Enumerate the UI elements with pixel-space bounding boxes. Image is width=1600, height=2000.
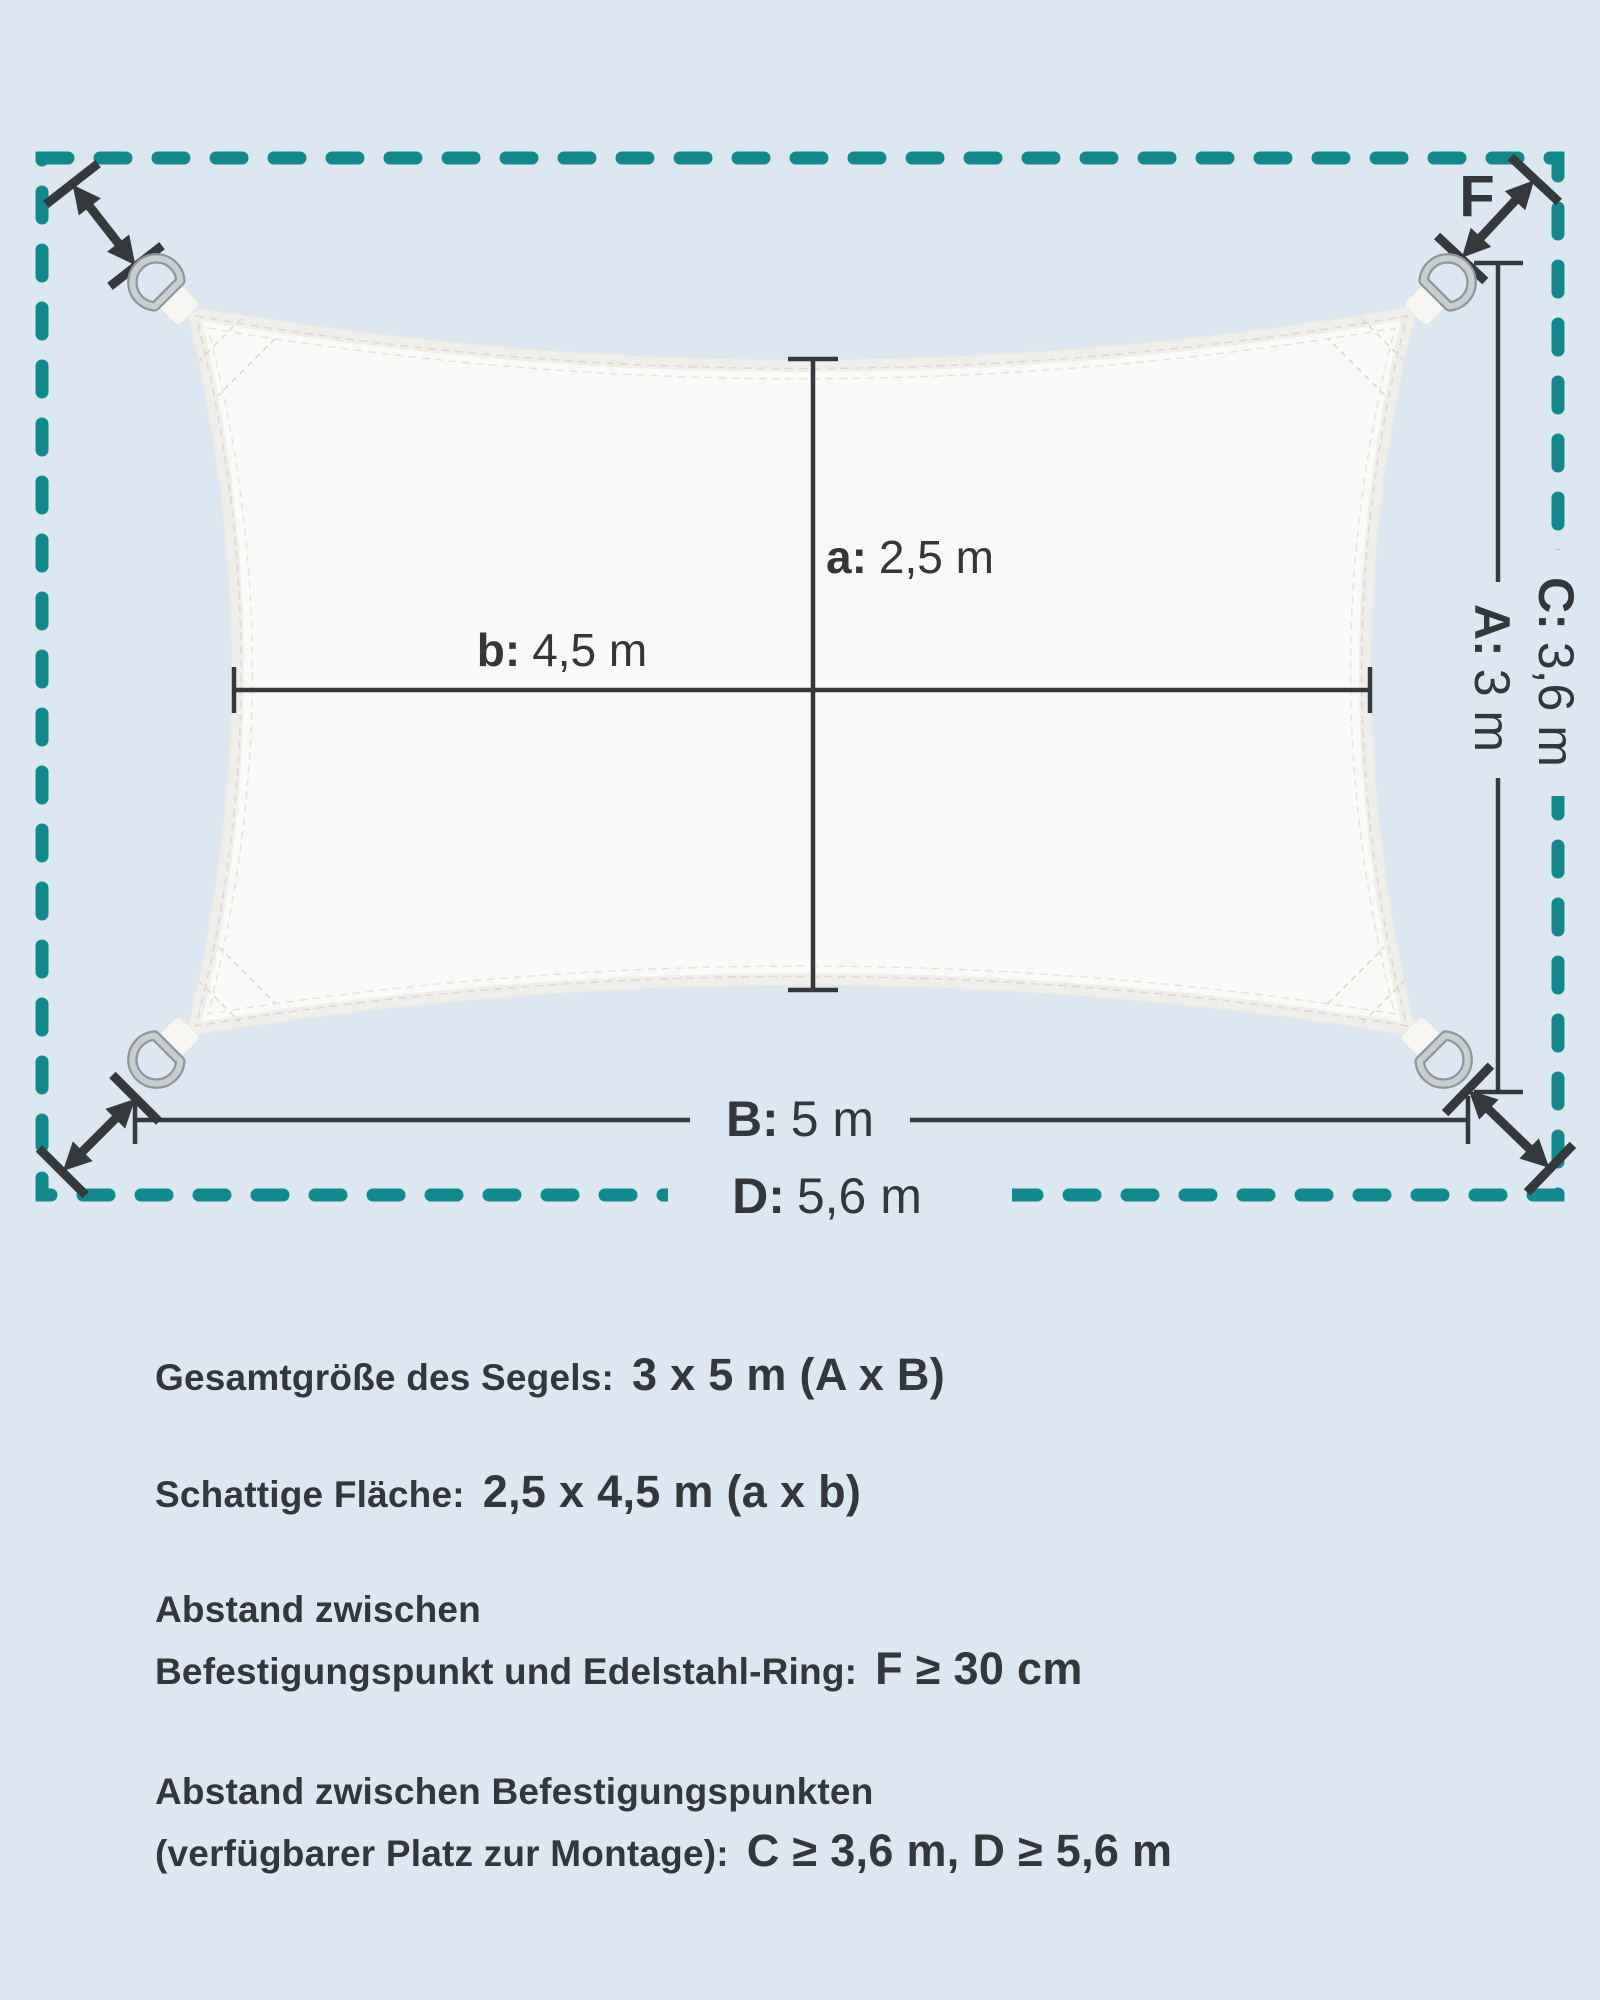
label-C: C:3,6 m — [1527, 577, 1585, 767]
label-A: A:3 m — [1463, 604, 1521, 752]
spec-ring-distance: Abstand zwischen Befestigungspunkt und E… — [155, 1580, 1083, 1701]
sun-sail-dimension-infographic: F a:2,5 m b:4,5 m C:3,6 m A:3 m B:5 m D:… — [0, 0, 1600, 2000]
label-a: a:2,5 m — [826, 530, 994, 584]
label-b: b:4,5 m — [477, 623, 647, 677]
label-overlay: F a:2,5 m b:4,5 m C:3,6 m A:3 m B:5 m D:… — [0, 0, 1600, 2000]
label-D: D:5,6 m — [732, 1167, 922, 1225]
spec-shaded-area: Schattige Fläche: 2,5 x 4,5 m (a x b) — [155, 1462, 861, 1524]
label-f: F — [1459, 164, 1494, 231]
spec-total-size: Gesamtgröße des Segels: 3 x 5 m (A x B) — [155, 1345, 945, 1407]
label-B: B:5 m — [726, 1090, 874, 1148]
spec-mounting-distance: Abstand zwischen Befestigungspunkten (ve… — [155, 1762, 1172, 1883]
